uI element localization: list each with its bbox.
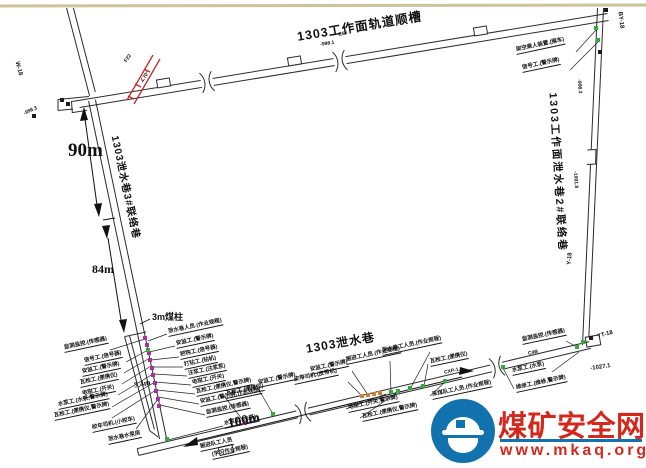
annotation-label: 监测监控.(传感器) [63, 337, 108, 353]
annotation-label: 泄水巷水泵房 [107, 431, 142, 445]
marker-dot [150, 366, 154, 370]
marker-dot [581, 340, 585, 344]
marker-dot [366, 393, 370, 397]
annotation-label: 安监工.(警示牌) [257, 373, 297, 388]
station-label: C4B [527, 350, 539, 358]
station-label: YT-18 [596, 330, 614, 341]
measurement-90m: 90m [68, 140, 103, 162]
marker-dot [143, 336, 147, 340]
marker-dot [151, 373, 155, 377]
marker-dot [594, 26, 598, 30]
station-label: -998.1 [320, 41, 336, 49]
station-label: -998.3 [23, 106, 39, 118]
marker-dot [443, 379, 447, 383]
annotation-label: 泄水巷工人员.(作业规程) [381, 336, 442, 356]
annotation-label: 架空乘人装置.(猴车) [515, 38, 566, 56]
watermark-url[interactable]: www.mkaq.org [500, 442, 646, 460]
annotation-label: 水泵工.(水泵) [511, 362, 545, 376]
label-coal-pillar: 3m煤柱 [152, 310, 183, 323]
marker-dot [596, 38, 600, 42]
marker-dot [32, 114, 36, 118]
marker-dot [421, 384, 425, 388]
marker-dot [66, 102, 70, 106]
marker-dot [372, 392, 376, 396]
marker-dot [408, 386, 412, 390]
marker-dot [148, 358, 152, 362]
annotation-layer: 监测监控.(传感器)信号工.(信号器)安监工.(警示牌)瓦检工.(便携仪)电钳工… [0, 0, 646, 468]
station-label: F22 [124, 53, 134, 64]
annotation-label: 监测监控.(传感器) [521, 329, 566, 345]
marker-dot [153, 381, 157, 385]
station-label: ∠70° [140, 71, 152, 85]
marker-dot [154, 389, 158, 393]
station-label: -1001.8 [571, 171, 578, 189]
marker-dot [389, 390, 393, 394]
annotation-label: 采煤队工人员.(作业规程) [431, 380, 492, 400]
mine-map: 监测监控.(传感器)信号工.(信号器)安监工.(警示牌)瓦检工.(便携仪)电钳工… [0, 0, 646, 468]
annotation-label: 维修工.(维修,警示牌) [515, 375, 567, 393]
station-label: W-18 [13, 61, 24, 77]
annotation-label: 绞车司机.(小绞车) [91, 417, 136, 433]
annotation-label: 瓦检工.(便携仪) [429, 352, 469, 367]
station-label: -1027.1 [590, 363, 612, 373]
marker-dot [378, 391, 382, 395]
marker-dot [501, 365, 505, 369]
marker-dot [396, 389, 400, 393]
marker-dot [575, 345, 579, 349]
measurement-84m: 84m [92, 262, 114, 277]
annotation-label: 信号工.(警示牌) [521, 58, 561, 73]
marker-dot [604, 8, 608, 12]
marker-dot [165, 437, 169, 441]
marker-dot [598, 50, 602, 54]
marker-dot [60, 98, 64, 102]
marker-dot [271, 412, 275, 416]
marker-dot [145, 343, 149, 347]
marker-dot [157, 404, 161, 408]
station-label: BY-18 [616, 11, 625, 29]
station-label: Y-18 [567, 252, 575, 266]
marker-dot [156, 397, 160, 401]
station-label: CXP-1 [443, 368, 460, 377]
marker-dot [589, 336, 593, 340]
marker-dot [146, 348, 150, 352]
station-label: -998.3 [575, 79, 582, 95]
marker-dot [360, 394, 364, 398]
